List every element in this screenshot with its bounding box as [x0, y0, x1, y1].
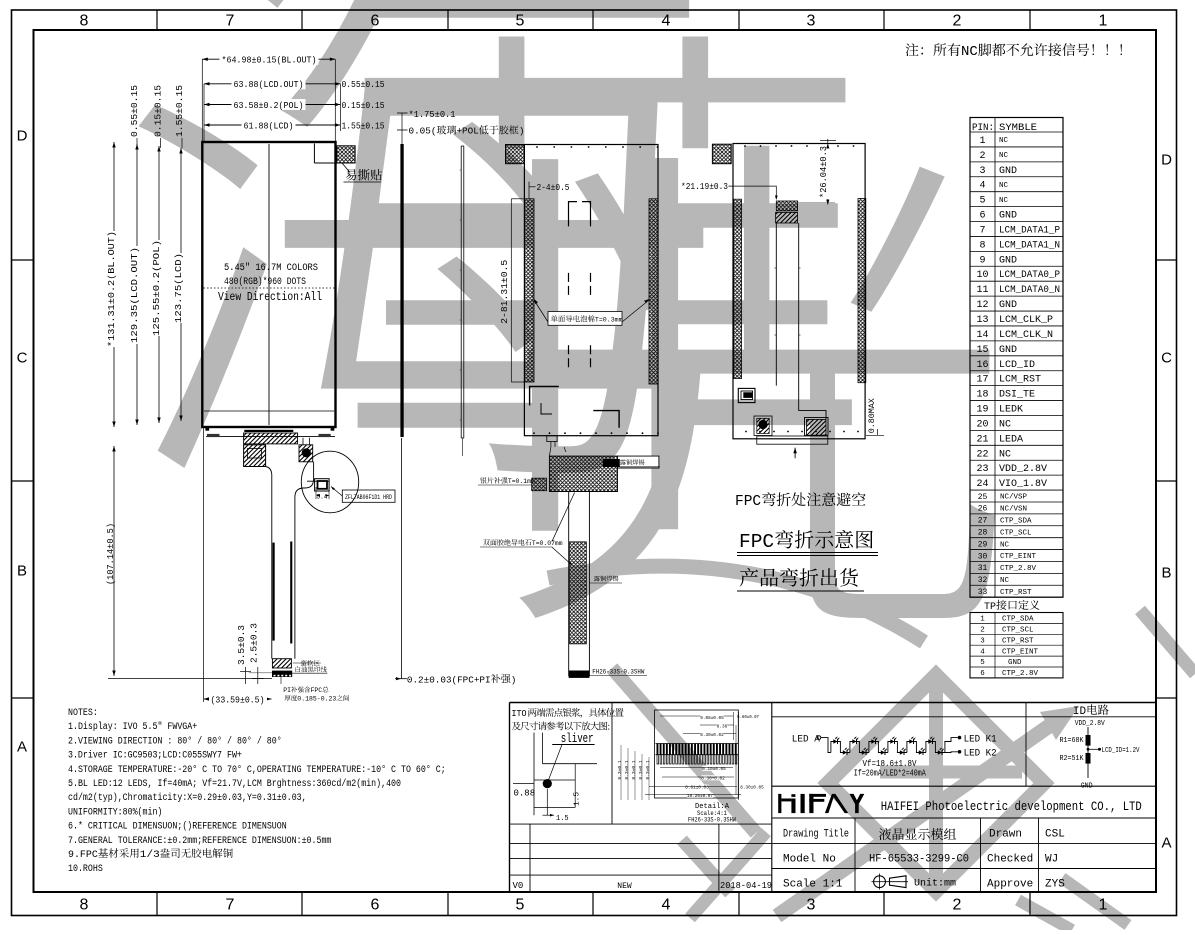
svg-text:NC: NC	[999, 182, 1009, 190]
svg-text:3: 3	[979, 166, 985, 177]
svg-text:*64.98±0.15(BL.OUT): *64.98±0.15(BL.OUT)	[222, 55, 317, 66]
svg-text:3: 3	[807, 13, 816, 30]
svg-text:19: 19	[976, 405, 988, 416]
svg-text:3.Driver IC:GC9503;LCD:C055SWY: 3.Driver IC:GC9503;LCD:C055SWY7 FW+	[68, 750, 242, 762]
svg-text:8: 8	[979, 240, 985, 251]
svg-text:1: 1	[979, 136, 985, 147]
svg-text:CSL: CSL	[1045, 829, 1065, 841]
svg-text:NOTES:: NOTES:	[68, 708, 98, 719]
svg-text:2018-04-19: 2018-04-19	[720, 881, 772, 891]
svg-text:*131.31±0.2(BL.OUT): *131.31±0.2(BL.OUT)	[106, 231, 117, 347]
svg-text:*26.04±0.3: *26.04±0.3	[818, 146, 829, 198]
svg-text:4: 4	[979, 181, 985, 192]
svg-text:GND: GND	[999, 166, 1017, 177]
svg-text:NC/VSN: NC/VSN	[1000, 506, 1027, 514]
svg-text:B: B	[1161, 565, 1171, 582]
svg-text:LCD_ID=1.2V: LCD_ID=1.2V	[1102, 747, 1140, 755]
svg-text:0.88: 0.88	[514, 789, 536, 799]
svg-text:5: 5	[980, 659, 985, 667]
svg-text:C: C	[1161, 350, 1172, 367]
svg-text:Model No: Model No	[783, 854, 836, 866]
svg-text:31: 31	[978, 564, 988, 573]
svg-text:2: 2	[980, 626, 985, 634]
svg-text:(107.14±0.5): (107.14±0.5)	[105, 523, 116, 585]
svg-text:2: 2	[953, 13, 962, 30]
svg-text:GND: GND	[999, 300, 1017, 311]
svg-text:26: 26	[978, 505, 988, 514]
svg-text:1.5: 1.5	[574, 792, 582, 806]
svg-text:LCM_DATA0_P: LCM_DATA0_P	[999, 270, 1060, 281]
svg-text:15: 15	[976, 345, 988, 356]
svg-text:9.08±0.05: 9.08±0.05	[700, 715, 724, 721]
svg-text:ID: ID	[1073, 706, 1087, 718]
svg-text:LCM_DATA1_N: LCM_DATA1_N	[999, 240, 1060, 251]
svg-text:FPC: FPC	[311, 687, 323, 694]
svg-text:14: 14	[976, 330, 988, 341]
svg-text:VDD_2.8V: VDD_2.8V	[1075, 720, 1105, 728]
svg-text:1.Display: IVO 5.5″ FWVGA+: 1.Display: IVO 5.5″ FWVGA+	[68, 721, 197, 733]
svg-text:WJ: WJ	[1045, 854, 1058, 866]
svg-text:28: 28	[978, 529, 988, 538]
svg-text:9.FPC: 9.FPC	[68, 850, 98, 861]
svg-text:sliver: sliver	[561, 732, 594, 746]
svg-text:24: 24	[976, 479, 988, 490]
svg-text:CTP_SCL: CTP_SCL	[1002, 626, 1034, 634]
svg-text:LCM_DATA1_P: LCM_DATA1_P	[999, 225, 1060, 236]
svg-text:7: 7	[979, 225, 985, 236]
svg-text:LED A: LED A	[792, 734, 820, 745]
svg-text:CTP_EINT: CTP_EINT	[1002, 648, 1039, 656]
svg-text:1: 1	[1099, 897, 1108, 914]
svg-text:NC: NC	[999, 449, 1011, 460]
svg-text:5: 5	[979, 196, 985, 207]
svg-text:123.75(LCD): 123.75(LCD)	[173, 253, 184, 323]
svg-text:7: 7	[226, 13, 235, 30]
svg-text:HAIFEI Photoelectric developme: HAIFEI Photoelectric development CO., LT…	[881, 799, 1142, 814]
svg-text:D: D	[1161, 152, 1172, 169]
svg-text:10: 10	[976, 270, 988, 281]
svg-text:22: 22	[976, 449, 988, 460]
svg-text:Drawing Title: Drawing Title	[783, 829, 849, 841]
svg-text:T=0.3mm: T=0.3mm	[595, 317, 623, 324]
svg-text:4: 4	[662, 897, 671, 914]
svg-text:CTP_SDA: CTP_SDA	[1002, 616, 1034, 624]
svg-text:0.55±0.15: 0.55±0.15	[342, 79, 385, 90]
svg-text:NC: NC	[999, 152, 1009, 160]
svg-text:18: 18	[976, 390, 988, 401]
svg-text:GND: GND	[999, 211, 1017, 222]
svg-text:ZYS: ZYS	[1045, 879, 1065, 891]
svg-text:0.2±0.03(FPC+PI: 0.2±0.03(FPC+PI	[407, 674, 491, 685]
svg-text:2-4±0.5: 2-4±0.5	[537, 182, 570, 193]
svg-text:63.88(LCD.OUT): 63.88(LCD.OUT)	[234, 79, 304, 90]
svg-text:1: 1	[980, 616, 985, 624]
svg-text:Vf=18.6±1.8V: Vf=18.6±1.8V	[863, 759, 917, 769]
svg-text:FH26-33S-0.3SHW: FH26-33S-0.3SHW	[592, 669, 644, 676]
svg-text:20: 20	[976, 419, 988, 430]
svg-text:NC/VSP: NC/VSP	[1000, 494, 1028, 502]
svg-text:LED K2: LED K2	[964, 748, 997, 759]
svg-text:Checked: Checked	[987, 854, 1033, 866]
svg-text:LCD_ID: LCD_ID	[999, 360, 1035, 371]
svg-text:8.3±0.1: 8.3±0.1	[645, 760, 651, 780]
svg-text:FPC: FPC	[739, 531, 774, 553]
svg-text:3.5±0.3: 3.5±0.3	[236, 625, 247, 665]
svg-text:32: 32	[978, 576, 988, 585]
svg-text:5: 5	[516, 13, 525, 30]
svg-text:3: 3	[807, 897, 816, 914]
svg-text:1.55±0.15: 1.55±0.15	[342, 120, 385, 131]
svg-text:4: 4	[662, 13, 671, 30]
svg-text:VIO_1.8V: VIO_1.8V	[999, 479, 1047, 490]
svg-text:HF-65533-3299-C0: HF-65533-3299-C0	[869, 854, 969, 866]
svg-text:): )	[519, 126, 525, 137]
svg-text:6: 6	[371, 897, 380, 914]
svg-text:6.* CRITICAL DIMENSUON;()REFER: 6.* CRITICAL DIMENSUON;()REFERENCE DIMEN…	[68, 821, 287, 833]
svg-text:CTP_2.8V: CTP_2.8V	[1002, 670, 1039, 678]
svg-text:8.3±0.1: 8.3±0.1	[631, 760, 637, 780]
svg-text:GND: GND	[999, 345, 1017, 356]
svg-text:0.55±0.15: 0.55±0.15	[129, 85, 140, 137]
svg-text:0.80MAX: 0.80MAX	[868, 398, 877, 433]
svg-text:0.60±0.07: 0.60±0.07	[737, 714, 759, 720]
svg-text:13: 13	[976, 315, 988, 326]
svg-text:4: 4	[980, 648, 985, 656]
svg-text:View Direction:All: View Direction:All	[218, 291, 322, 304]
svg-text:LCM_CLK_N: LCM_CLK_N	[999, 330, 1053, 341]
svg-text:GND: GND	[999, 255, 1017, 266]
svg-text:5.45″ 16.7M COLORS: 5.45″ 16.7M COLORS	[224, 262, 318, 274]
svg-text:2.VIEWING DIRECTION : 80° / 80: 2.VIEWING DIRECTION : 80° / 80° / 80° / …	[68, 735, 282, 747]
svg-text:125.55±0.2(POL): 125.55±0.2(POL)	[151, 240, 162, 336]
svg-text:(33.59±0.5): (33.59±0.5)	[211, 695, 265, 706]
svg-text:1: 1	[1099, 13, 1108, 30]
svg-text:NC: NC	[1000, 541, 1010, 549]
svg-text:CTP_2.8V: CTP_2.8V	[1000, 565, 1037, 573]
svg-text:A: A	[17, 739, 27, 756]
svg-text:FH26-33S-0.3SHW: FH26-33S-0.3SHW	[688, 817, 736, 824]
svg-text:6: 6	[980, 670, 985, 678]
svg-text:CTP_RST: CTP_RST	[1000, 589, 1032, 597]
svg-text:12: 12	[976, 300, 988, 311]
svg-text:27: 27	[978, 517, 988, 526]
svg-text:1.5: 1.5	[556, 815, 569, 823]
svg-text:8.3±0.1: 8.3±0.1	[624, 760, 630, 780]
svg-text:PI: PI	[283, 687, 291, 694]
svg-text:NC: NC	[961, 44, 978, 60]
svg-text:+POL: +POL	[456, 126, 478, 137]
svg-text:7.GENERAL TOLERANCE:±0.2mm;REF: 7.GENERAL TOLERANCE:±0.2mm;REFERENCE DIM…	[68, 836, 331, 847]
svg-text:R1=68K: R1=68K	[1060, 737, 1084, 745]
svg-text:LEDK: LEDK	[999, 405, 1023, 416]
svg-text:4.STORAGE TEMPERATURE:-20° C T: 4.STORAGE TEMPERATURE:-20° C TO 70° C,OP…	[68, 764, 446, 776]
svg-text:LCM_RST: LCM_RST	[999, 375, 1041, 386]
svg-text:CTP_SDA: CTP_SDA	[1000, 517, 1032, 525]
svg-text:10.ROHS: 10.ROHS	[68, 864, 103, 875]
svg-text:10.20±0.07: 10.20±0.07	[687, 793, 713, 799]
svg-text:0.10±0.05: 0.10±0.05	[702, 766, 726, 772]
svg-text:VDD_2.8V: VDD_2.8V	[999, 464, 1047, 475]
svg-text:17: 17	[976, 375, 988, 386]
svg-text:D: D	[17, 128, 28, 145]
svg-text:NC: NC	[1000, 577, 1010, 585]
svg-text:A: A	[1161, 835, 1171, 852]
svg-text:*1.75±0.1: *1.75±0.1	[409, 109, 456, 120]
svg-text:7: 7	[226, 897, 235, 914]
svg-text:11: 11	[976, 285, 988, 296]
svg-text:GND: GND	[1081, 783, 1093, 791]
svg-text:9: 9	[979, 255, 985, 266]
svg-text:8.30±0.02: 8.30±0.02	[700, 732, 724, 738]
svg-text:Drawn: Drawn	[989, 829, 1022, 841]
svg-text:LEDA: LEDA	[999, 434, 1023, 445]
svg-text:129.35(LCD.OUT): 129.35(LCD.OUT)	[129, 247, 140, 343]
svg-text:3: 3	[980, 637, 985, 645]
svg-text:T=0.1mm: T=0.1mm	[508, 478, 535, 485]
svg-text:6: 6	[371, 13, 380, 30]
svg-text:Unit:mm: Unit:mm	[914, 878, 956, 890]
svg-text:CTP_RST: CTP_RST	[1002, 637, 1034, 645]
svg-text:): )	[511, 674, 517, 685]
svg-text:8.30+0.02: 8.30+0.02	[701, 775, 725, 781]
svg-text:23: 23	[976, 464, 988, 475]
svg-text:Approve: Approve	[987, 879, 1033, 891]
svg-text:CTP_EINT: CTP_EINT	[1000, 553, 1037, 561]
svg-text:TP: TP	[984, 602, 996, 613]
svg-text:V0: V0	[513, 881, 524, 891]
svg-text:29: 29	[978, 540, 988, 549]
svg-text:8.36: 8.36	[717, 723, 728, 729]
svg-text:Scale 1:1: Scale 1:1	[783, 879, 843, 891]
svg-text:61.88(LCD): 61.88(LCD)	[244, 120, 294, 131]
svg-text:8.3±0.1: 8.3±0.1	[638, 760, 644, 780]
svg-text:NEW: NEW	[617, 882, 632, 891]
svg-text:2.5±0.3: 2.5±0.3	[249, 623, 260, 663]
svg-text:DSI_TE: DSI_TE	[999, 390, 1035, 401]
svg-text:0.15±0.15: 0.15±0.15	[342, 100, 385, 111]
svg-text:*21.19±0.3: *21.19±0.3	[681, 181, 728, 192]
svg-text:FPC: FPC	[735, 494, 761, 510]
svg-text:ZFL7AB06F1D1 HRD: ZFL7AB06F1D1 HRD	[345, 494, 392, 501]
svg-text:21: 21	[976, 434, 988, 445]
svg-text:B: B	[17, 563, 27, 580]
svg-text:8.61±0.03: 8.61±0.03	[685, 785, 709, 791]
svg-text:33: 33	[978, 588, 988, 597]
svg-text:63.58±0.2(POL): 63.58±0.2(POL)	[234, 100, 304, 111]
svg-text:30: 30	[978, 552, 988, 561]
svg-text:T=0.07mm: T=0.07mm	[532, 540, 563, 547]
svg-text:cd/m2(typ),Chromaticity:X=0.29: cd/m2(typ),Chromaticity:X=0.29±0.03,Y=0.…	[68, 792, 307, 804]
svg-text:C: C	[17, 350, 28, 367]
svg-text:16: 16	[976, 360, 988, 371]
svg-text:UNIFORMITY:80%(min): UNIFORMITY:80%(min)	[68, 806, 162, 818]
svg-text:LCM_DATA0_N: LCM_DATA0_N	[999, 285, 1060, 296]
svg-text:ITO: ITO	[512, 709, 527, 719]
svg-text:5: 5	[516, 897, 525, 914]
svg-text:1.55±0.15: 1.55±0.15	[174, 85, 185, 137]
svg-text:CTP_SCL: CTP_SCL	[1000, 529, 1032, 537]
svg-text:0.15±0.15: 0.15±0.15	[153, 85, 164, 137]
svg-text:2-81.31±0.5: 2-81.31±0.5	[499, 260, 510, 324]
svg-text:NC: NC	[999, 419, 1011, 430]
svg-text:8.30±0.05: 8.30±0.05	[740, 785, 764, 791]
svg-text:NC: NC	[999, 197, 1009, 205]
svg-text:0.185-0.23: 0.185-0.23	[297, 696, 336, 703]
svg-text:8: 8	[80, 897, 89, 914]
svg-text:5.BL LED:12 LEDS, If=40mA; Vf=: 5.BL LED:12 LEDS, If=40mA; Vf=21.7V,LCM …	[68, 778, 401, 790]
svg-text:8.3±0.1: 8.3±0.1	[617, 760, 623, 780]
svg-text:480(RGB)*960 DOTS: 480(RGB)*960 DOTS	[224, 276, 306, 288]
svg-text:LCM_CLK_P: LCM_CLK_P	[999, 315, 1053, 326]
svg-text:NC: NC	[999, 137, 1009, 145]
svg-text:If=20mA/LED*2=40mA: If=20mA/LED*2=40mA	[854, 769, 926, 779]
svg-text:2: 2	[979, 151, 985, 162]
svg-text:25: 25	[978, 493, 988, 502]
svg-text:6: 6	[979, 211, 985, 222]
svg-text:R2=51K: R2=51K	[1060, 755, 1084, 763]
svg-text:1/3: 1/3	[140, 849, 160, 861]
svg-text:8: 8	[80, 13, 89, 30]
svg-text:LED K1: LED K1	[964, 734, 997, 745]
svg-text:GND: GND	[1008, 659, 1022, 667]
svg-text:2: 2	[953, 897, 962, 914]
svg-text:0.05(: 0.05(	[409, 126, 437, 137]
